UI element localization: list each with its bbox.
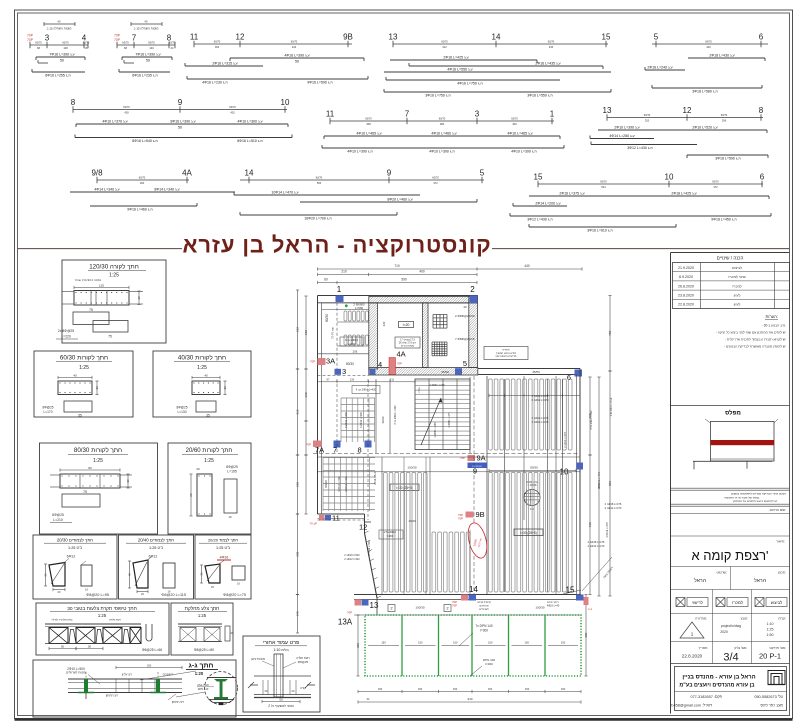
svg-text:150: 150 [147, 663, 152, 667]
svg-text:50: 50 [295, 60, 299, 64]
svg-text:308: 308 [366, 122, 371, 126]
svg-text:קורה: קורה [300, 686, 306, 690]
svg-text:50: 50 [146, 59, 150, 63]
svg-text:1:25 ב'ט: 1:25 ב'ט [149, 546, 164, 550]
svg-text:11: 11 [326, 110, 335, 119]
svg-text:150: 150 [561, 641, 566, 645]
svg-text:10Φ14 L=470 ע.ג: 10Φ14 L=470 ע.ג [271, 191, 298, 195]
svg-text:14: 14 [245, 169, 254, 178]
svg-text:לרישוי: לרישוי [692, 600, 704, 605]
svg-text:60/70: 60/70 [712, 179, 719, 183]
svg-text:חתך לקורה 120/30: חתך לקורה 120/30 [89, 263, 139, 271]
svg-text:ב Φ8Φ L=195: ב Φ8Φ L=195 [434, 422, 437, 438]
svg-text:150: 150 [296, 482, 300, 487]
svg-text:8Φ@25: 8Φ@25 [176, 406, 187, 410]
svg-text:13: 13 [389, 33, 398, 42]
svg-text:3: 3 [45, 34, 50, 43]
svg-text:12: 12 [359, 523, 367, 532]
svg-text:7: 7 [405, 110, 410, 119]
svg-text:Φ8@20 L=115: Φ8@20 L=115 [161, 593, 186, 597]
svg-text:100/30: 100/30 [535, 606, 545, 610]
svg-text:3A: 3A [326, 357, 335, 366]
svg-text:- יש להזמין מעבדה מאושרת לבדיק: - יש להזמין מעבדה מאושרת לבדיקת הבטונים [724, 345, 786, 349]
svg-text:75: 75 [83, 490, 87, 494]
svg-text:ב 2Φ12 L=470: ב 2Φ12 L=470 [605, 506, 622, 510]
svg-text:8: 8 [358, 446, 362, 455]
svg-text:184: 184 [215, 45, 220, 49]
svg-text:3 2Φ12 L=280: 3 2Φ12 L=280 [338, 476, 341, 492]
svg-text:3Φ16 L=550 ת.ג: 3Φ16 L=550 ת.ג [527, 94, 553, 98]
svg-text:435: 435 [588, 522, 592, 527]
svg-text:60/70: 60/70 [148, 40, 155, 44]
svg-text:ב 2Φ12 I=342: ב 2Φ12 I=342 [344, 558, 360, 561]
svg-text:60/70: 60/70 [705, 39, 712, 43]
svg-text:1:25: 1:25 [767, 628, 774, 632]
svg-text:300: 300 [512, 122, 517, 126]
svg-text:750: 750 [608, 330, 612, 335]
svg-text:חתך לקורות 20/60: חתך לקורות 20/60 [186, 446, 233, 454]
svg-text:26.8.2020: 26.8.2020 [678, 284, 694, 288]
svg-text:I=300: I=300 [480, 629, 488, 633]
svg-text:7Φ16 L=390 ע.ג: 7Φ16 L=390 ע.ג [135, 53, 160, 57]
svg-text:40/30: 40/30 [409, 519, 416, 523]
svg-text:למכרז: למכרז [732, 600, 744, 605]
svg-text:140: 140 [149, 46, 154, 50]
svg-text:150: 150 [381, 641, 386, 645]
svg-text:L=300: L=300 [348, 342, 356, 346]
svg-text:30: 30 [126, 479, 130, 483]
svg-text:3 2Φ12 L=263: 3 2Φ12 L=263 [345, 476, 348, 492]
svg-text:245: 245 [296, 611, 300, 616]
svg-text:130: 130 [304, 392, 308, 397]
svg-text:9: 9 [387, 169, 392, 178]
svg-text:9Φ16 L=590 ת.ג: 9Φ16 L=590 ת.ג [307, 81, 333, 85]
svg-text:50: 50 [88, 644, 92, 648]
svg-text:6Φ16 L=255 ת.ג: 6Φ16 L=255 ת.ג [45, 74, 71, 78]
svg-text:130: 130 [350, 378, 355, 382]
svg-text:3Φ12 L=430 ת.ג: 3Φ12 L=430 ת.ג [527, 218, 553, 222]
svg-text:60: 60 [189, 493, 193, 497]
svg-text:20: 20 [463, 305, 467, 309]
svg-text:12: 12 [683, 106, 692, 115]
svg-text:ריצ תחתון: ריצ תחתון [172, 700, 185, 704]
svg-text:100/30: 100/30 [407, 466, 417, 470]
svg-text:L=560: L=560 [355, 306, 364, 310]
svg-text:30: 30 [95, 386, 99, 390]
svg-text:ב 2Φ16 I=540: ב 2Φ16 I=540 [344, 554, 360, 557]
svg-text:4Φ10 L=465 ע.ג: 4Φ10 L=465 ע.ג [356, 132, 381, 136]
svg-text:יש להתאים ביצוע הלבנים אל המתכ: יש להתאים ביצוע הלבנים אל המתכנן. [733, 499, 778, 503]
svg-text:2020: 2020 [720, 630, 728, 634]
svg-text:60/70: 60/70 [644, 113, 651, 117]
svg-text:11: 11 [190, 33, 199, 42]
svg-text:מלמה 2 90 מלוי שורה: מלמה 2 90 מלוי שורה [75, 278, 101, 282]
svg-text:20 P-1: 20 P-1 [759, 652, 781, 661]
svg-text:7Φ16 L=390 ע.ג: 7Φ16 L=390 ע.ג [49, 53, 74, 57]
svg-text:23.8.2020: 23.8.2020 [678, 294, 694, 298]
svg-text:7: 7 [333, 446, 337, 455]
svg-text:4Φ10 L=465 ע.ג: 4Φ10 L=465 ע.ג [507, 132, 532, 136]
svg-text:ב 70P: ב 70P [310, 522, 318, 526]
svg-text:60/70: 60/70 [122, 40, 129, 44]
svg-text:ל 3x 2Φ16 L=340: ל 3x 2Φ16 L=340 [393, 405, 397, 425]
svg-text:5: 5 [654, 33, 659, 42]
svg-text:מוטות עיגון: מוטות עיגון [251, 657, 265, 661]
svg-text:4A: 4A [182, 169, 192, 178]
svg-text:150: 150 [453, 641, 458, 645]
svg-text:440: 440 [524, 264, 530, 268]
svg-text:10: 10 [665, 173, 674, 182]
svg-text:4Φ10 L=460 ע.ג: 4Φ10 L=460 ע.ג [431, 132, 456, 136]
svg-text:1: 1 [550, 110, 555, 119]
svg-text:400: 400 [419, 270, 425, 274]
svg-text:מס' פרויקט:: מס' פרויקט: [770, 646, 787, 650]
svg-text:ב·ב: ב·ב [588, 607, 593, 611]
svg-text:80/30: 80/30 [324, 480, 328, 488]
svg-text:60/70: 60/70 [62, 40, 69, 44]
svg-text:ב 2Φ12 L=475: ב 2Φ12 L=475 [532, 416, 549, 420]
svg-text:15: 15 [602, 33, 611, 42]
svg-text:I=20: I=20 [403, 323, 410, 327]
svg-text:2Φ16 (25+5): 2Φ16 (25+5) [374, 471, 377, 485]
svg-text:9Φ16 L=460 ת.ג: 9Φ16 L=460 ת.ג [127, 208, 153, 212]
svg-text:60/70: 60/70 [441, 39, 448, 43]
svg-text:Φ8@25: Φ8@25 [298, 660, 309, 664]
svg-text:2x 8Φ@25: 2x 8Φ@25 [58, 329, 74, 333]
svg-text:2Φ14 L=200 ע.ג: 2Φ14 L=200 ע.ג [535, 202, 560, 206]
svg-text:חתך לצמודים 20/30: חתך לצמודים 20/30 [57, 538, 93, 543]
svg-text:148: 148 [63, 46, 68, 50]
svg-text:- יש לעדכן את המתכנן אם שגוי ל: - יש לעדכן את המתכנן אם שגוי לפני ביצוע … [716, 331, 786, 335]
svg-text:I=300: I=300 [485, 662, 493, 666]
svg-text:13: 13 [603, 106, 612, 115]
svg-text:- יש לקרוא תכנית זו בצמוד לתכנ: - יש לקרוא תכנית זו בצמוד לתכנית אדריכלי… [725, 338, 786, 342]
svg-text:077-3182657 :פקס: 077-3182657 :פקס [690, 695, 722, 699]
svg-text:שינוי למכרז: שינוי למכרז [728, 275, 746, 279]
svg-text:280: 280 [440, 122, 445, 126]
svg-text:1:25 ב'ט: 1:25 ב'ט [216, 546, 231, 550]
svg-text:9B: 9B [343, 33, 353, 42]
svg-text:80/30: 80/30 [325, 314, 329, 322]
svg-text:תכנון:: תכנון: [778, 571, 786, 575]
svg-text:הראל בן עזרא - מהנדס בניין: הראל בן עזרא - מהנדס בניין [682, 673, 755, 681]
svg-text:1:50: 1:50 [767, 633, 774, 637]
svg-text:50: 50 [279, 697, 283, 701]
svg-text:60/70: 60/70 [316, 175, 323, 179]
svg-text:30: 30 [137, 296, 141, 300]
svg-text:8Φ@25: 8Φ@25 [42, 406, 53, 410]
svg-text:4Φ10 L=370 ע.ג: 4Φ10 L=370 ע.ג [102, 120, 127, 124]
svg-text:2Φ18 L=425 ע.ג: 2Φ18 L=425 ע.ג [671, 192, 696, 196]
svg-text:4A: 4A [397, 350, 406, 359]
svg-text:1:25: 1:25 [98, 613, 107, 618]
svg-text:חתך לקורות 40/30: חתך לקורות 40/30 [178, 354, 226, 362]
svg-text:ל 2Φ16 L=540: ל 2Φ16 L=540 [368, 540, 371, 556]
svg-text:60/70: 60/70 [169, 40, 176, 44]
svg-text:4Φ14 L=280 ע.ג: 4Φ14 L=280 ע.ג [609, 134, 634, 138]
svg-text:8Φ14 L=340 ע.ג: 8Φ14 L=340 ע.ג [154, 188, 179, 192]
svg-text:60/70: 60/70 [600, 179, 607, 183]
svg-text:I=300: I=300 [387, 534, 394, 538]
svg-text:70P: 70P [458, 516, 463, 520]
svg-text:12: 12 [236, 33, 245, 42]
svg-text:1:25: 1:25 [93, 458, 103, 464]
svg-text:865: 865 [608, 481, 612, 486]
svg-text:2 5x 2Φ12: 2 5x 2Φ12 [384, 530, 397, 534]
svg-text:ב 2Φ12 L=470: ב 2Φ12 L=470 [532, 420, 549, 424]
svg-text:לעיון: לעיון [734, 294, 741, 298]
svg-text:440: 440 [549, 45, 554, 49]
svg-text:35: 35 [206, 414, 210, 418]
svg-text:215: 215 [296, 409, 300, 414]
svg-text:4: 4 [378, 360, 382, 369]
svg-text:412: 412 [442, 45, 447, 49]
svg-text:שרטוט:: שרטוט: [716, 571, 727, 575]
svg-text:חתך לקורות 80/30: חתך לקורות 80/30 [74, 446, 122, 454]
svg-text:פרופיל מרחב: פרופיל מרחב [477, 600, 491, 604]
svg-text:בן עזרא מהנדסים ויועצים בע"מ: בן עזרא מהנדסים ויועצים בע"מ [679, 683, 755, 689]
svg-text:rb458@gmail.com :דוא"ל: rb458@gmail.com :דוא"ל [670, 704, 712, 708]
svg-text:50: 50 [61, 644, 65, 648]
svg-text:35/50: 35/50 [532, 370, 540, 374]
svg-text:8Φ16 L=510 ת.ג: 8Φ16 L=510 ת.ג [237, 139, 263, 143]
svg-text:2Φ10 L=520 ע.ג: 2Φ10 L=520 ע.ג [692, 126, 717, 130]
svg-text:L=195: L=195 [227, 470, 237, 474]
svg-text:1:25: 1:25 [79, 365, 89, 371]
svg-text:2: 2 [470, 285, 475, 294]
svg-text:ריצ תחתון: ריצ תחתון [106, 694, 119, 698]
svg-text:9A: 9A [477, 454, 486, 463]
svg-text:תאריך:: תאריך: [698, 646, 708, 650]
svg-text:מוטות השחלה 15 ב: מוטות השחלה 15 ב [47, 27, 72, 31]
svg-text:211: 211 [390, 378, 395, 382]
svg-text:150: 150 [561, 687, 566, 691]
svg-text:210: 210 [296, 327, 300, 332]
svg-text:60/70: 60/70 [229, 105, 236, 109]
svg-text:ב 2Φ12 L=475: ב 2Φ12 L=475 [532, 394, 549, 398]
svg-text:4Φ16 L=40: 4Φ16 L=40 [547, 604, 560, 607]
svg-text:150: 150 [488, 641, 493, 645]
svg-text:432: 432 [292, 45, 297, 49]
svg-text:3 2Φ12 L=260: 3 2Φ12 L=260 [360, 411, 363, 428]
svg-text:חתך טיפוסי תקרת צלעות בטובי 30: חתך טיפוסי תקרת צלעות בטובי 30 [67, 605, 137, 612]
svg-text:רשת פלדה: רשת פלדה [109, 618, 121, 622]
svg-text:372: 372 [433, 181, 438, 185]
svg-text:קונסטרוקציה - הראל בן עזרא: קונסטרוקציה - הראל בן עזרא [182, 233, 491, 258]
svg-text:4Φ16 L=230 ת.ג: 4Φ16 L=230 ת.ג [202, 81, 228, 85]
svg-text:קובץ:: קובץ: [741, 617, 748, 621]
svg-text:I=30 (25+5): I=30 (25+5) [520, 531, 536, 535]
svg-text:בלוק פוליביד למילוי: בלוק פוליביד למילוי [52, 618, 73, 622]
svg-text:4Φ16: 4Φ16 [220, 556, 229, 560]
svg-text:1: 1 [691, 632, 694, 637]
svg-text:20: 20 [196, 467, 200, 471]
svg-text:420: 420 [230, 111, 235, 115]
svg-text:320: 320 [645, 119, 650, 123]
svg-text:40/30: 40/30 [381, 416, 385, 423]
svg-text:2Φ18 L=430 ע.ג: 2Φ18 L=430 ע.ג [709, 54, 734, 58]
svg-text:7x DPN 140: 7x DPN 140 [475, 624, 492, 628]
svg-text:מס' גליון:: מס' גליון: [734, 646, 747, 650]
svg-text:6Φ12: 6Φ12 [67, 555, 76, 559]
svg-text:1:20: 1:20 [195, 671, 204, 676]
svg-text:7 Φ8Φ@20/15: 7 Φ8Φ@20/15 [455, 337, 475, 341]
svg-text:2 Φ8Φ@20/30: 2 Φ8Φ@20/30 [455, 314, 475, 318]
svg-text:70P: 70P [27, 34, 34, 38]
svg-text:150: 150 [378, 687, 383, 691]
svg-text:2Φ16 L=240 ע.ג: 2Φ16 L=240 ע.ג [647, 66, 672, 70]
svg-text:לשרוולים: לשרוולים [479, 607, 489, 611]
svg-text:ב Φ8Φ L=175: ב Φ8Φ L=175 [448, 412, 451, 428]
svg-text:2Φ10 L=390 ע.ג: 2Φ10 L=390 ע.ג [614, 126, 639, 130]
svg-text:70P: 70P [310, 360, 315, 364]
svg-text:ב 2Φ12 L=470: ב 2Φ12 L=470 [564, 432, 567, 448]
svg-text:3: 3 [475, 110, 480, 119]
svg-text:70P: 70P [397, 362, 402, 366]
svg-text:מדרגות ברצפה נפץ: מדרגות ברצפה נפץ [496, 355, 517, 358]
svg-text:פרט עמוד אחורי: פרט עמוד אחורי [263, 640, 300, 646]
svg-text:13: 13 [370, 601, 379, 610]
svg-text:60/70: 60/70 [439, 116, 446, 120]
svg-text:עליה: עליה [417, 387, 421, 393]
svg-text:40: 40 [204, 373, 208, 377]
svg-text:project/o/dwg: project/o/dwg [721, 624, 741, 628]
svg-text:ב 2Φ18 L=475: ב 2Φ18 L=475 [605, 502, 622, 506]
svg-text:70P: 70P [27, 38, 34, 42]
svg-text:70P: 70P [452, 604, 457, 608]
svg-text:7A: 7A [315, 446, 324, 455]
svg-text:8Φ20 L=460 ע.ג: 8Φ20 L=460 ע.ג [387, 198, 412, 202]
svg-text:Φ8@25 L=80: Φ8@25 L=80 [194, 648, 214, 652]
svg-text:8: 8 [759, 106, 764, 115]
svg-text:משטח ביניים: משטח ביניים [401, 345, 414, 348]
svg-text:8: 8 [71, 98, 76, 107]
svg-text:70P: 70P [460, 456, 465, 460]
svg-text:L=220: L=220 [61, 335, 71, 339]
svg-text:15: 15 [534, 173, 543, 182]
svg-text:70P: 70P [114, 34, 121, 38]
svg-text:רצפת קומה א': רצפת קומה א' [691, 548, 768, 563]
svg-text:4 Φ8Φ L=135: 4 Φ8Φ L=135 [429, 384, 445, 387]
svg-text:70P: 70P [347, 611, 352, 615]
svg-text:60/70: 60/70 [721, 113, 728, 117]
svg-text:2Φ16 L=435 ע.ג: 2Φ16 L=435 ע.ג [535, 62, 560, 66]
svg-text:420: 420 [706, 45, 711, 49]
svg-text:Φ8@20 L=75: Φ8@20 L=75 [223, 593, 246, 597]
svg-text:428: 428 [124, 111, 129, 115]
svg-text:ASA 75x8: ASA 75x8 [197, 683, 209, 687]
svg-text:3 2Φ16 L=475: 3 2Φ16 L=475 [606, 522, 609, 538]
svg-text:150: 150 [525, 641, 530, 645]
svg-text:9: 9 [178, 98, 183, 107]
svg-text:חתך ג-ג: חתך ג-ג [189, 663, 214, 670]
svg-text:2Φ16 L=425 ע.ג: 2Φ16 L=425 ע.ג [443, 56, 468, 60]
svg-text:50: 50 [178, 126, 182, 130]
svg-text:300: 300 [584, 632, 588, 637]
svg-text:60: 60 [324, 278, 328, 282]
svg-text:הראל: הראל [754, 577, 766, 584]
svg-text:3: 3 [342, 367, 346, 376]
svg-text:60/70: 60/70 [432, 175, 439, 179]
svg-text:80: 80 [88, 466, 92, 470]
svg-text:35/50: 35/50 [441, 370, 449, 374]
svg-text:לעיון: לעיון [734, 303, 741, 307]
svg-text:60/70: 60/70 [123, 105, 130, 109]
svg-text:22.8.2020: 22.8.2020 [682, 654, 703, 659]
svg-text:21.9.2020: 21.9.2020 [678, 266, 694, 270]
svg-text:5: 5 [463, 359, 467, 368]
svg-text:1:25 ב'ט: 1:25 ב'ט [68, 546, 83, 550]
svg-text:3Φ18 L=580 ת.ג: 3Φ18 L=580 ת.ג [692, 90, 718, 94]
svg-text:L=130: L=130 [178, 410, 187, 414]
svg-text:75: 75 [108, 335, 112, 339]
svg-text:150: 150 [525, 687, 530, 691]
svg-text:קנ"מ:: קנ"מ: [778, 617, 786, 621]
svg-text:6: 6 [759, 33, 764, 42]
svg-text:60/70: 60/70 [214, 39, 221, 43]
svg-text:9/8: 9/8 [91, 169, 103, 178]
svg-text:4Φ10 L=390 ת.ג: 4Φ10 L=390 ת.ג [511, 150, 537, 154]
svg-text:16: 16 [228, 515, 232, 519]
svg-text:Φ8@25 L=66: Φ8@25 L=66 [142, 648, 162, 652]
svg-text:206: 206 [353, 350, 358, 354]
svg-text:4Φ10 L=300 ע.ג: 4Φ10 L=300 ע.ג [237, 120, 262, 124]
svg-text:100/30: 100/30 [415, 606, 425, 610]
svg-text:6: 6 [760, 173, 765, 182]
svg-text:2.5x 2Φ12 L=410: 2.5x 2Φ12 L=410 [610, 397, 613, 416]
svg-text:8Φ@25: 8Φ@25 [226, 465, 238, 469]
svg-text:3 5x 2Φ12 L=410: 3 5x 2Φ12 L=410 [590, 410, 593, 430]
svg-text:מוטות לשרוולים: מוטות לשרוולים [66, 671, 86, 675]
svg-text:6Φ16 L=235 ת.ג: 6Φ16 L=235 ת.ג [132, 74, 158, 78]
svg-text:ב 2Φ12 L=470: ב 2Φ12 L=470 [532, 398, 549, 402]
svg-text:8.9.2020: 8.9.2020 [679, 275, 693, 279]
svg-text:210: 210 [341, 270, 347, 274]
svg-text:תיאור:: תיאור: [776, 540, 785, 544]
svg-text:מפלס: מפלס [725, 409, 741, 417]
svg-text:9: 9 [473, 467, 477, 476]
svg-text:60/70: 60/70 [365, 116, 372, 120]
svg-text:150: 150 [418, 687, 423, 691]
svg-text:6: 6 [567, 373, 571, 382]
svg-text:60/70: 60/70 [139, 175, 146, 179]
svg-text:4Φ16 L=550 ע.ג: 4Φ16 L=550 ע.ג [447, 68, 472, 72]
svg-text:1:25: 1:25 [198, 613, 207, 618]
svg-text:30: 30 [223, 386, 227, 390]
svg-text:70 70 שח: 70 70 שח [331, 327, 335, 339]
svg-text:9Φ18 L=450 ת.ג: 9Φ18 L=450 ת.ג [711, 218, 737, 222]
svg-text:55: 55 [78, 414, 82, 418]
svg-text:4Φ10 L=390 ת.ג: 4Φ10 L=390 ת.ג [347, 150, 373, 154]
svg-text:710: 710 [394, 264, 400, 268]
svg-text:14: 14 [469, 585, 478, 594]
svg-text:60/70: 60/70 [511, 116, 518, 120]
svg-text:ב 4x 2Φ16 L=420: ב 4x 2Φ16 L=420 [356, 388, 377, 392]
svg-text:- טיב הבטון ב-30.: - טיב הבטון ב-30. [762, 324, 786, 328]
svg-text:75: 75 [89, 308, 93, 312]
svg-text:3Φ16 L=610 ת.ג: 3Φ16 L=610 ת.ג [587, 229, 613, 233]
svg-text:לביצוע: לביצוע [732, 266, 742, 270]
svg-text:8Φ16 L=390 ע.ג: 8Φ16 L=390 ע.ג [170, 120, 195, 124]
svg-text:4Φ16 L=750 ת.ג: 4Φ16 L=750 ת.ג [457, 82, 483, 86]
svg-text:4Φ14 L=340 ע.ג: 4Φ14 L=340 ע.ג [94, 188, 119, 192]
svg-text:ריצ עליון: ריצ עליון [122, 673, 133, 677]
svg-text:60/70: 60/70 [35, 40, 42, 44]
svg-text:מען: כפר פינס: מען: כפר פינס [760, 704, 783, 708]
svg-text:3Φ18 L=590 ת.ג: 3Φ18 L=590 ת.ג [715, 157, 741, 161]
svg-text:מהדורה:: מהדורה: [695, 617, 707, 621]
svg-text:340: 340 [382, 321, 386, 326]
